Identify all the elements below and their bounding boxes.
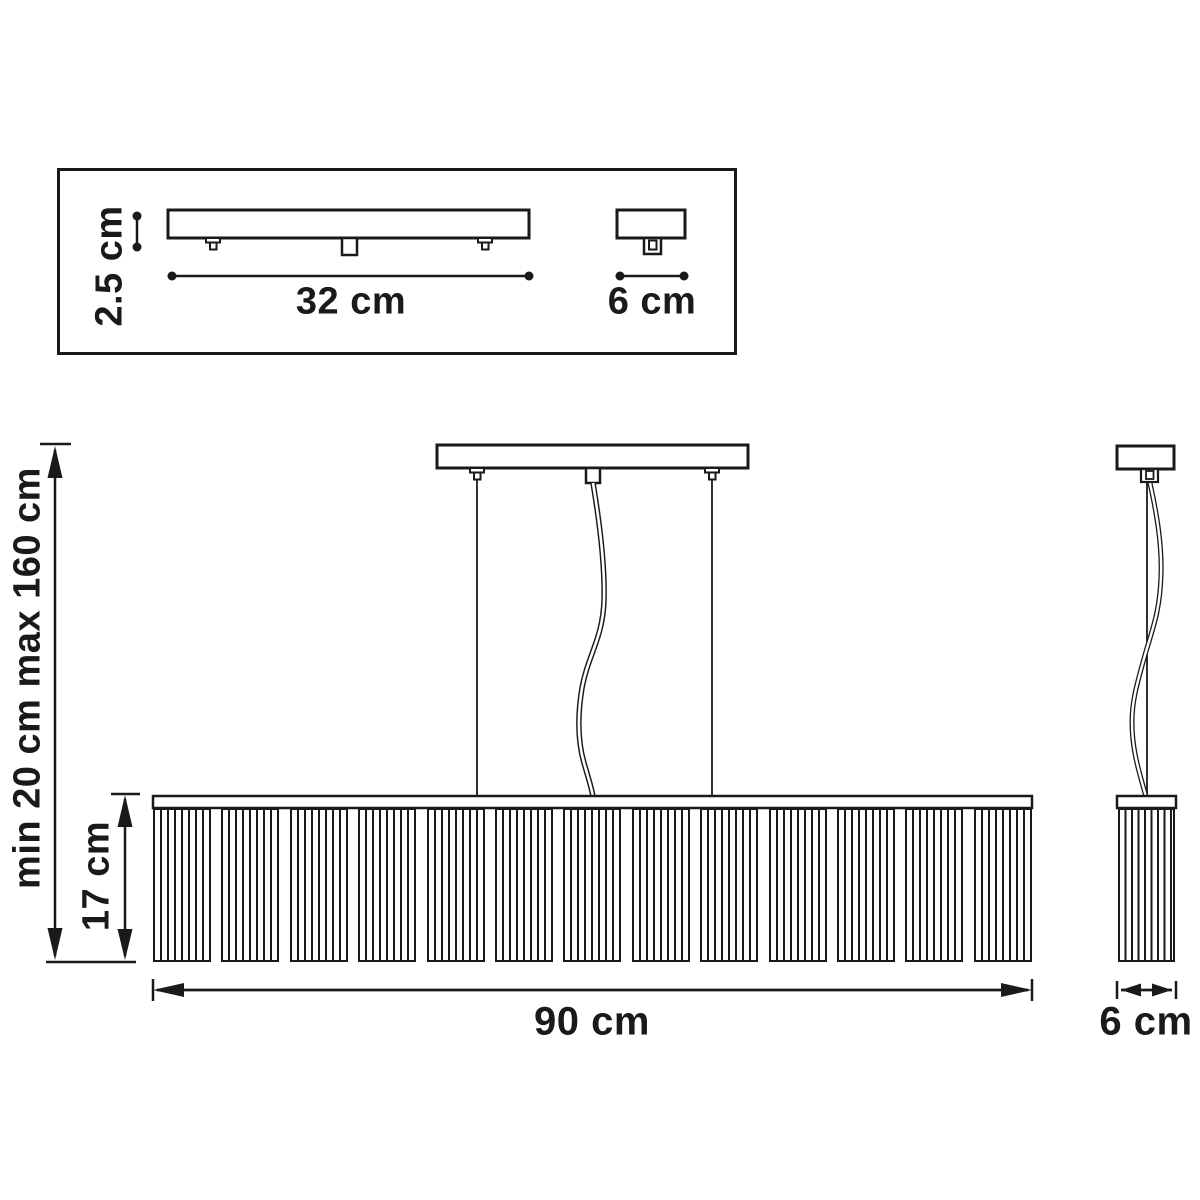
plate-depth-label: 6 cm bbox=[608, 281, 697, 324]
shade-top-rail-front bbox=[153, 796, 1032, 808]
canopy-side-view bbox=[1117, 446, 1174, 482]
dim-plate-depth bbox=[616, 272, 689, 281]
cable-gland-icon bbox=[586, 468, 600, 483]
shade-depth-label: 6 cm bbox=[1099, 1000, 1192, 1045]
shade-panel bbox=[700, 808, 758, 962]
mounting-plate-side-top-view bbox=[617, 210, 685, 254]
suspension-height-label: min 20 cm max 160 cm bbox=[7, 467, 50, 889]
shade-front-view bbox=[153, 808, 1032, 962]
dim-shade-depth bbox=[1117, 981, 1176, 999]
shade-panel bbox=[153, 808, 211, 962]
plate-height-label: 2.5 cm bbox=[89, 205, 132, 326]
shade-width-label: 90 cm bbox=[534, 1000, 650, 1045]
shade-panel bbox=[290, 808, 348, 962]
shade-panel bbox=[632, 808, 690, 962]
mounting-plate-top-view bbox=[168, 210, 529, 255]
plate-length-label: 32 cm bbox=[296, 281, 406, 324]
shade-panel bbox=[837, 808, 895, 962]
shade-panel bbox=[358, 808, 416, 962]
shade-top-rail-side bbox=[1117, 796, 1176, 808]
plate-center-clip-icon bbox=[342, 238, 357, 255]
shade-panel bbox=[905, 808, 963, 962]
shade-height-label: 17 cm bbox=[76, 821, 119, 931]
shade-panel bbox=[495, 808, 553, 962]
suspension-side bbox=[1132, 482, 1161, 797]
pendant-lamp-dimension-drawing: 2.5 cm 32 cm 6 cm min 20 cm max 160 cm 1… bbox=[0, 0, 1200, 1200]
dim-plate-height bbox=[133, 212, 142, 252]
dim-shade-width bbox=[153, 979, 1032, 1001]
shade-panel bbox=[769, 808, 827, 962]
shade-panel bbox=[563, 808, 621, 962]
dim-plate-length bbox=[168, 272, 534, 281]
shade-side-view bbox=[1118, 808, 1175, 962]
suspension-wires-front bbox=[477, 479, 712, 797]
canopy-front-view bbox=[437, 445, 748, 483]
shade-panel bbox=[427, 808, 485, 962]
shade-panel bbox=[974, 808, 1032, 962]
shade-panel bbox=[221, 808, 279, 962]
